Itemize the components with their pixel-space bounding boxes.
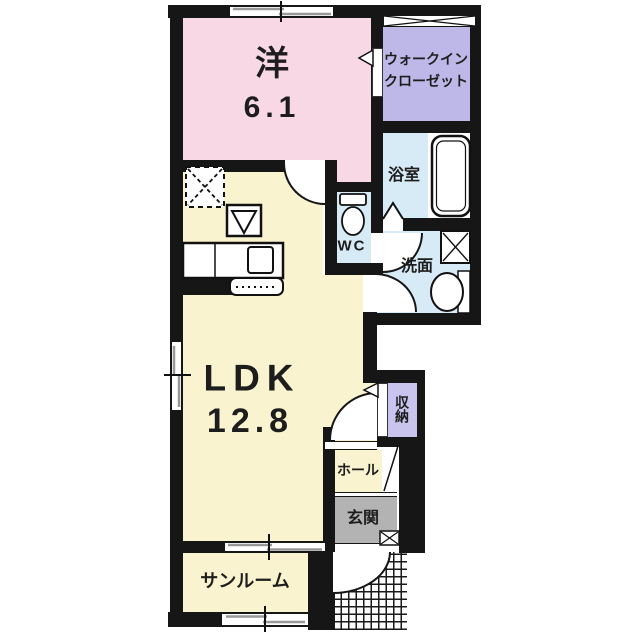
kitchen-sink	[227, 205, 261, 236]
toilet-label: WC	[338, 239, 367, 254]
wic-label-line1: ウォークイン	[384, 52, 468, 66]
western-room-label: 洋	[255, 47, 289, 81]
western-room-area: 6.1	[244, 93, 301, 123]
ldk-label: LDK	[203, 360, 300, 397]
toilet	[340, 194, 366, 235]
bathtub	[432, 136, 470, 216]
fixtures-layer	[0, 0, 640, 640]
stove	[248, 247, 273, 273]
kitchen-counter	[183, 243, 283, 295]
sunroom-label: サンルーム	[200, 572, 289, 590]
refrigerator-space	[186, 167, 224, 207]
ldk-area: 12.8	[207, 404, 293, 438]
bathroom-folding-door	[383, 203, 403, 219]
wic-window-cross	[384, 16, 475, 26]
storage-doorway-arrow	[364, 383, 378, 397]
floor-plan: 洋 6.1 ウォークイン クローゼット 浴室 WC 洗面 LDK 12.8 収納…	[0, 0, 640, 640]
washing-machine-space	[441, 231, 470, 263]
washroom-label: 洗面	[401, 259, 433, 275]
angled-wall-line	[384, 446, 398, 491]
bathroom-label: 浴室	[388, 168, 420, 184]
entrance-label: 玄関	[347, 511, 379, 527]
entrance-meter-box	[380, 531, 399, 545]
wash-basin	[431, 271, 470, 313]
wic-doorway-arrow	[359, 50, 373, 66]
hall-label: ホール	[337, 463, 379, 477]
storage-label: 収納	[395, 395, 409, 423]
wic-label-line2: クローゼット	[384, 74, 468, 88]
